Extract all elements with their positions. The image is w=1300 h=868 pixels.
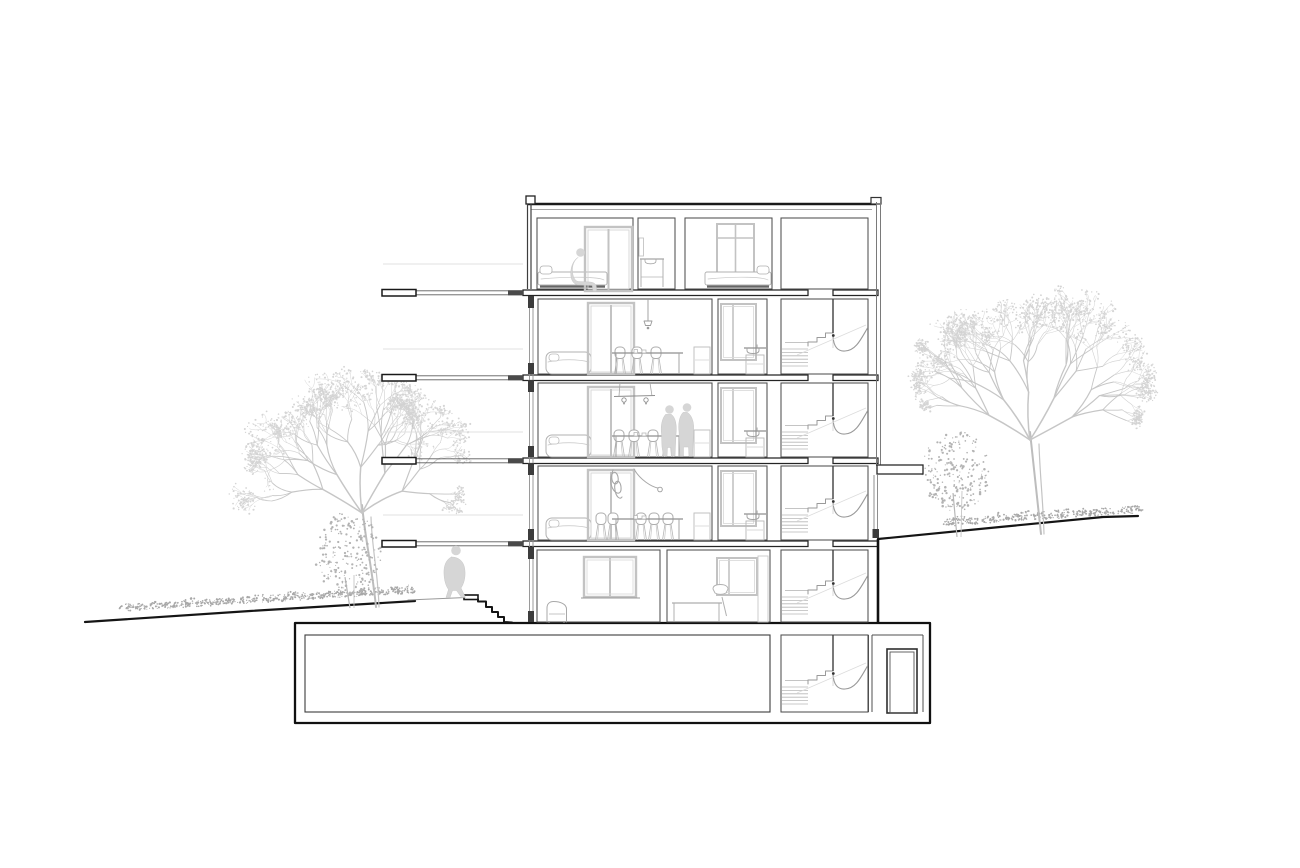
balcony-edge-cap	[382, 458, 416, 465]
tableware	[634, 433, 638, 437]
floor-slab	[523, 541, 808, 547]
handrail-beyond	[797, 491, 866, 521]
figure-standing-right-body	[679, 413, 694, 457]
balcony-wall-anchor	[508, 375, 523, 380]
architectural-section-canvas	[0, 0, 1300, 868]
room	[538, 299, 712, 374]
stair-flight	[781, 383, 868, 457]
bathroom-window	[721, 388, 756, 443]
handrail-beyond	[797, 325, 866, 355]
tableware	[642, 433, 646, 436]
mirror	[639, 238, 644, 256]
exterior-walls	[528, 202, 881, 622]
stair-flight	[781, 550, 868, 622]
wall-basin	[713, 585, 728, 595]
glazing-frame-cap	[528, 380, 534, 392]
floor-level-1	[538, 466, 767, 540]
floor-level-3	[538, 299, 767, 374]
room	[537, 550, 660, 622]
wall-cabinet	[694, 347, 710, 374]
tableware	[642, 350, 646, 353]
stair-flight	[781, 299, 868, 374]
roof-parapet-left	[526, 196, 535, 204]
pillow	[549, 354, 559, 361]
entrance-canopy	[877, 465, 923, 474]
street-entrance	[873, 465, 924, 623]
balcony-edge-cap	[382, 541, 416, 548]
floor-slab	[523, 458, 808, 464]
floor-slabs	[523, 290, 878, 547]
bed-base	[707, 286, 769, 288]
basement-entrance-door	[887, 649, 917, 713]
hedge-left	[119, 585, 416, 612]
floor-slab	[523, 290, 808, 296]
garden-steps	[478, 600, 512, 623]
glazing-frame-cap	[528, 363, 534, 374]
tableware	[634, 516, 638, 520]
light-stem	[650, 383, 652, 396]
glazing-frame-cap	[528, 463, 534, 475]
cable-light	[611, 470, 622, 498]
pillow	[549, 437, 559, 444]
light-stem	[619, 383, 620, 396]
upper-steps-outline	[808, 333, 833, 346]
stairwell-attic-landing	[781, 218, 868, 289]
tall-cupboard	[758, 556, 768, 622]
pillow	[757, 266, 769, 274]
balcony-edge-cap	[382, 375, 416, 382]
basement-cellar-room	[305, 635, 770, 712]
armchair	[547, 602, 567, 623]
tree-large-left	[229, 366, 472, 607]
floor-slab	[833, 541, 878, 547]
upper-steps-outline	[808, 499, 833, 512]
floor-slab	[833, 290, 878, 296]
bathroom-window	[721, 304, 756, 360]
balcony-wall-anchor	[508, 290, 523, 295]
floor-level-2	[538, 383, 767, 457]
figure-standing-left-body	[661, 415, 676, 457]
cable-swag	[634, 469, 658, 488]
light-track	[614, 396, 655, 397]
balcony-wall-anchor	[508, 541, 523, 546]
towel	[722, 597, 727, 616]
garden-step-landing	[464, 595, 478, 600]
room	[718, 383, 767, 457]
figure-walking-garden-body	[444, 557, 466, 598]
pillow	[540, 266, 552, 274]
building-section-drawing	[0, 0, 1300, 868]
glazing-frame-cap	[528, 296, 534, 308]
floor-garden	[537, 550, 770, 623]
ground-line-left	[85, 601, 415, 622]
washbasin	[747, 431, 759, 437]
upper-steps-outline	[808, 416, 833, 429]
floor-slab	[833, 375, 878, 381]
pendant-shade	[644, 321, 652, 326]
room	[718, 299, 767, 374]
tree-large-right	[907, 285, 1158, 534]
washbasin	[747, 514, 759, 520]
glazing-frame-cap	[528, 529, 534, 540]
tableware	[642, 516, 646, 519]
room	[538, 466, 712, 540]
window-glass	[724, 391, 754, 441]
upper-steps-outline	[808, 581, 833, 594]
wall-cabinet	[694, 430, 710, 457]
entrance-glazing-cap	[873, 529, 880, 538]
glazing-frame-cap	[528, 446, 534, 457]
bathroom-window	[721, 471, 756, 526]
wall-cabinet	[694, 513, 710, 540]
room	[718, 466, 767, 540]
building-section	[295, 196, 930, 723]
figure-walking-garden	[444, 546, 466, 598]
balcony-edge-cap	[382, 290, 416, 297]
handrail-beyond	[797, 573, 866, 603]
chair-shell	[596, 513, 606, 525]
floor-slab	[523, 375, 808, 381]
figure-standing-left	[661, 405, 676, 456]
garden-path-line	[408, 598, 466, 601]
pillow	[549, 520, 559, 527]
figure-standing-right	[679, 403, 694, 456]
window-glass	[724, 474, 754, 524]
handrail-beyond	[797, 408, 866, 438]
washbasin	[645, 259, 656, 264]
glazing-frame-cap	[528, 547, 534, 559]
washbasin	[747, 348, 759, 354]
roof	[526, 196, 881, 210]
window-glass	[724, 307, 754, 358]
site	[85, 285, 1158, 622]
tableware	[634, 350, 638, 354]
stair-flight	[781, 466, 868, 540]
glazing-frame-cap	[528, 611, 534, 622]
floor-slab	[833, 458, 878, 464]
balcony-wall-anchor	[508, 458, 523, 463]
basement	[295, 623, 930, 723]
tree-small-right	[921, 431, 989, 537]
